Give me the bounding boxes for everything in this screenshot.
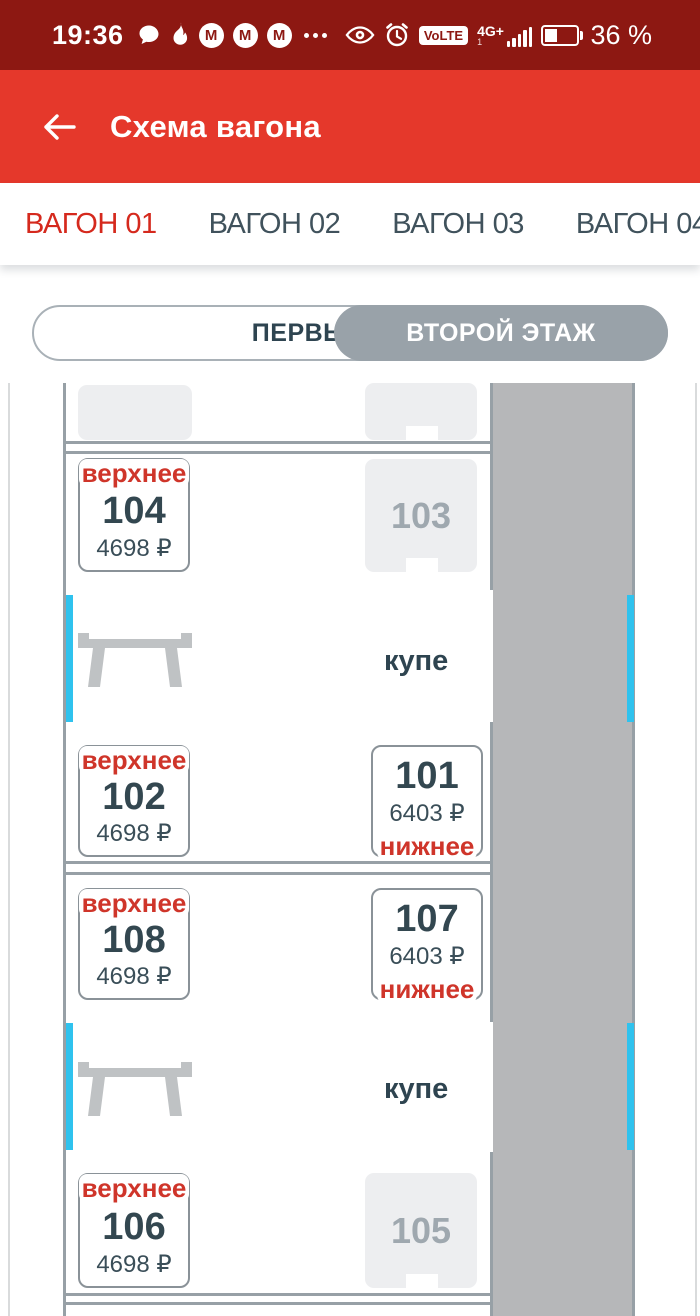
seat-price: 4698 ₽ <box>96 537 171 561</box>
status-left: 19:36 M M M <box>52 20 327 51</box>
battery-percent: 36 % <box>590 20 652 51</box>
seat-number: 101 <box>395 757 458 797</box>
sim-indicator: 1 <box>477 38 482 47</box>
car-map-canvas[interactable]: верхнее 104 4698 ₽ 103 купе верхнее 102 … <box>0 383 700 1316</box>
tab-vagon-04[interactable]: ВАГОН 04 <box>576 208 700 241</box>
window-marker-icon <box>66 1023 73 1150</box>
screen: 19:36 M M M VoLTE 4G+ 1 <box>0 0 700 1316</box>
tab-vagon-02[interactable]: ВАГОН 02 <box>209 208 341 241</box>
seat-notch <box>406 426 438 440</box>
table-icon <box>78 1056 192 1118</box>
app-badge-m-icon: M <box>199 23 224 48</box>
seat-103-occupied: 103 <box>365 459 477 572</box>
berth-label: верхнее <box>79 746 190 774</box>
seat-102[interactable]: верхнее 102 4698 ₽ <box>78 745 190 857</box>
eye-icon <box>345 25 375 45</box>
car-tab-bar: ВАГОН 01 ВАГОН 02 ВАГОН 03 ВАГОН 04 <box>0 183 700 265</box>
app-bar: Схема вагона <box>0 70 700 183</box>
seat-number: 102 <box>102 778 165 818</box>
compartment-divider <box>63 1293 493 1296</box>
seat-price: 4698 ₽ <box>96 1253 171 1277</box>
seat-number: 104 <box>102 492 165 532</box>
window-marker-icon <box>627 1023 634 1150</box>
chat-bubble-icon <box>137 23 161 47</box>
seat-price: 4698 ₽ <box>96 822 171 846</box>
window-marker-icon <box>627 595 634 722</box>
alarm-clock-icon <box>384 22 410 48</box>
volte-badge: VoLTE <box>419 26 468 45</box>
car-wall-right <box>632 383 635 1316</box>
berth-label: нижнее <box>377 832 478 860</box>
floor-toggle-section: ПЕРВЫЙ ЭТАЖ ВТОРОЙ ЭТАЖ <box>0 265 700 383</box>
seat-price: 4698 ₽ <box>96 965 171 989</box>
app-badge-m-icon: M <box>267 23 292 48</box>
clock: 19:36 <box>52 20 124 51</box>
tab-vagon-01[interactable]: ВАГОН 01 <box>25 208 157 241</box>
seat-partial <box>78 385 192 440</box>
corridor <box>493 383 632 1316</box>
signal-icon: 4G+ 1 <box>477 24 532 47</box>
status-bar: 19:36 M M M VoLTE 4G+ 1 <box>0 0 700 70</box>
table-icon <box>78 627 192 689</box>
seat-number: 103 <box>391 495 451 537</box>
tab-vagon-03[interactable]: ВАГОН 03 <box>392 208 524 241</box>
seat-number: 106 <box>102 1208 165 1248</box>
battery-icon <box>541 25 579 46</box>
car-outer-line-right <box>695 383 697 1316</box>
toggle-second-floor[interactable]: ВТОРОЙ ЭТАЖ <box>334 305 668 361</box>
compartment-divider <box>63 451 493 454</box>
app-badge-m-icon: M <box>233 23 258 48</box>
corridor-wall-segment <box>490 383 493 590</box>
more-notifications-icon <box>304 33 327 38</box>
seat-number: 105 <box>391 1210 451 1252</box>
corridor-wall-segment <box>490 1152 493 1316</box>
compartment-divider <box>63 872 493 875</box>
flame-icon <box>170 22 190 48</box>
car-outer-line-left <box>8 383 10 1316</box>
back-button[interactable] <box>36 104 82 150</box>
seat-104[interactable]: верхнее 104 4698 ₽ <box>78 458 190 572</box>
seat-106[interactable]: верхнее 106 4698 ₽ <box>78 1173 190 1288</box>
compartment-label: купе <box>384 645 448 677</box>
seat-price: 6403 ₽ <box>389 802 464 826</box>
berth-label: верхнее <box>79 1174 190 1202</box>
floor-toggle: ПЕРВЫЙ ЭТАЖ ВТОРОЙ ЭТАЖ <box>32 305 668 361</box>
back-arrow-icon <box>42 112 76 142</box>
compartment-divider <box>63 861 493 864</box>
seat-notch <box>406 1274 438 1288</box>
window-marker-icon <box>66 595 73 722</box>
seat-price: 6403 ₽ <box>389 945 464 969</box>
seat-number: 107 <box>395 900 458 940</box>
seat-notch <box>406 558 438 572</box>
seat-105-occupied: 105 <box>365 1173 477 1288</box>
compartment-divider <box>63 441 493 444</box>
page-title: Схема вагона <box>110 109 321 145</box>
seat-partial <box>365 383 477 440</box>
car-wall-left <box>63 383 66 1316</box>
berth-label: нижнее <box>377 975 478 1003</box>
status-right: VoLTE 4G+ 1 36 % <box>345 20 652 51</box>
network-type-label: 4G+ <box>477 24 504 38</box>
berth-label: верхнее <box>79 889 190 917</box>
compartment-label: купе <box>384 1073 448 1105</box>
seat-108[interactable]: верхнее 108 4698 ₽ <box>78 888 190 1000</box>
compartment-divider <box>63 1302 493 1305</box>
seat-101[interactable]: 101 6403 ₽ нижнее <box>371 745 483 857</box>
seat-number: 108 <box>102 921 165 961</box>
seat-107[interactable]: 107 6403 ₽ нижнее <box>371 888 483 1000</box>
signal-bars-icon <box>507 27 533 47</box>
berth-label: верхнее <box>79 459 190 487</box>
